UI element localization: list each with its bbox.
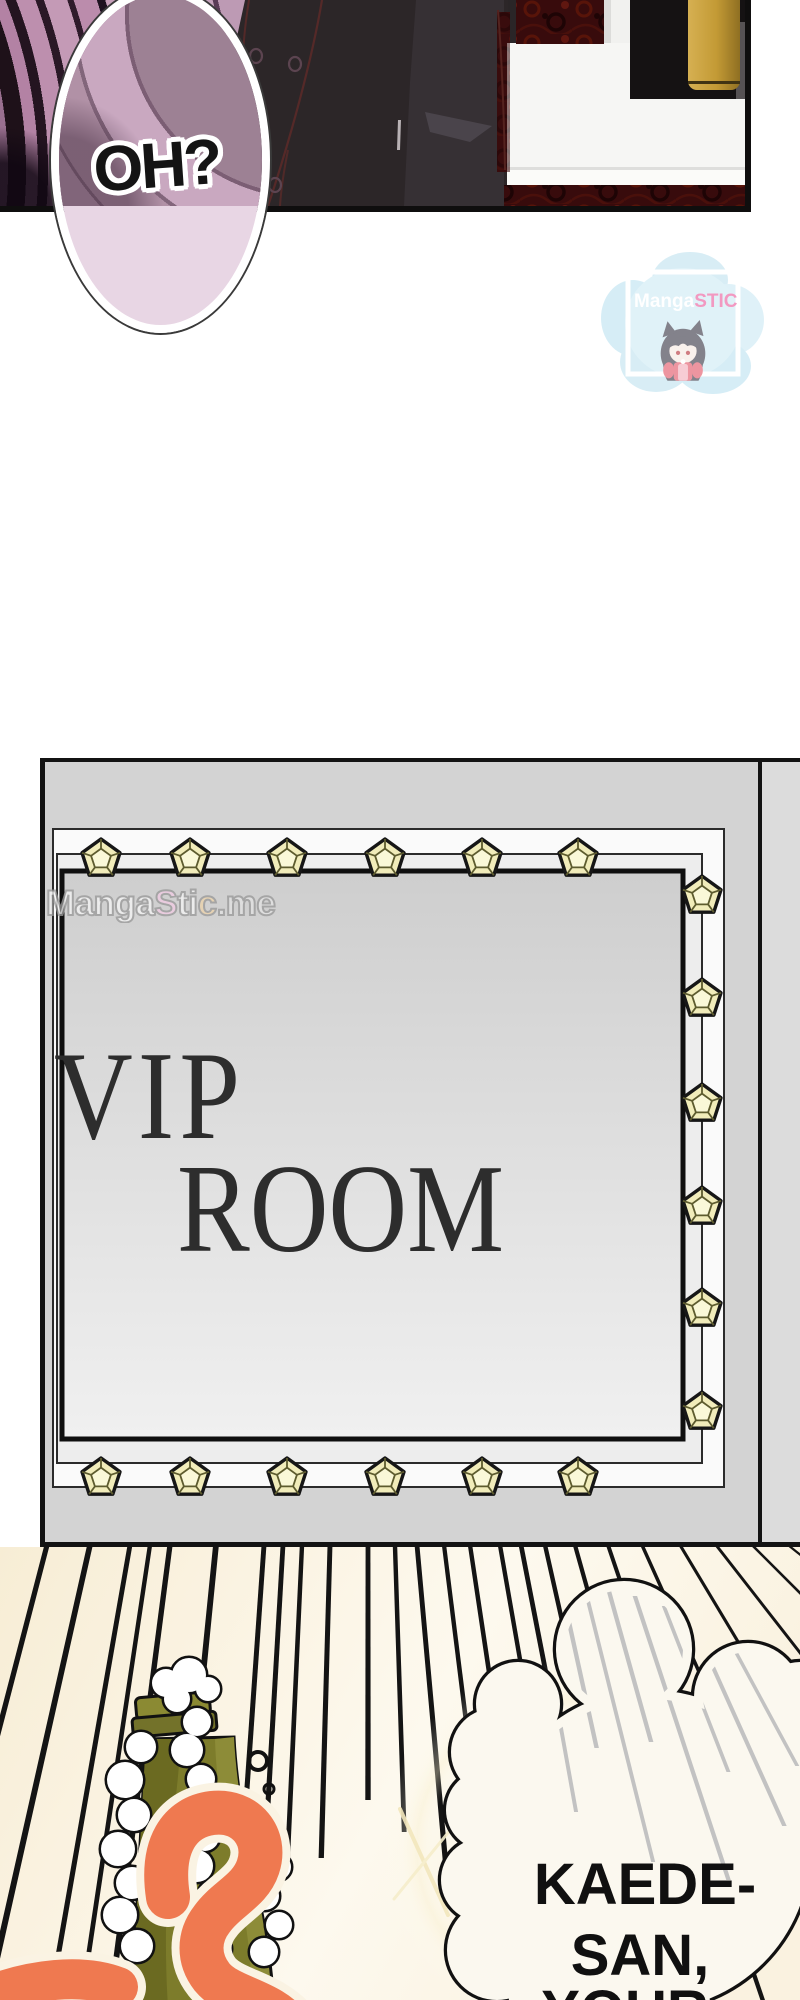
svg-text:KAEDE-: KAEDE- (534, 1852, 756, 1917)
svg-text:YOUR: YOUR (541, 1979, 709, 2000)
svg-text:MangaSTIC: MangaSTIC (634, 291, 738, 312)
